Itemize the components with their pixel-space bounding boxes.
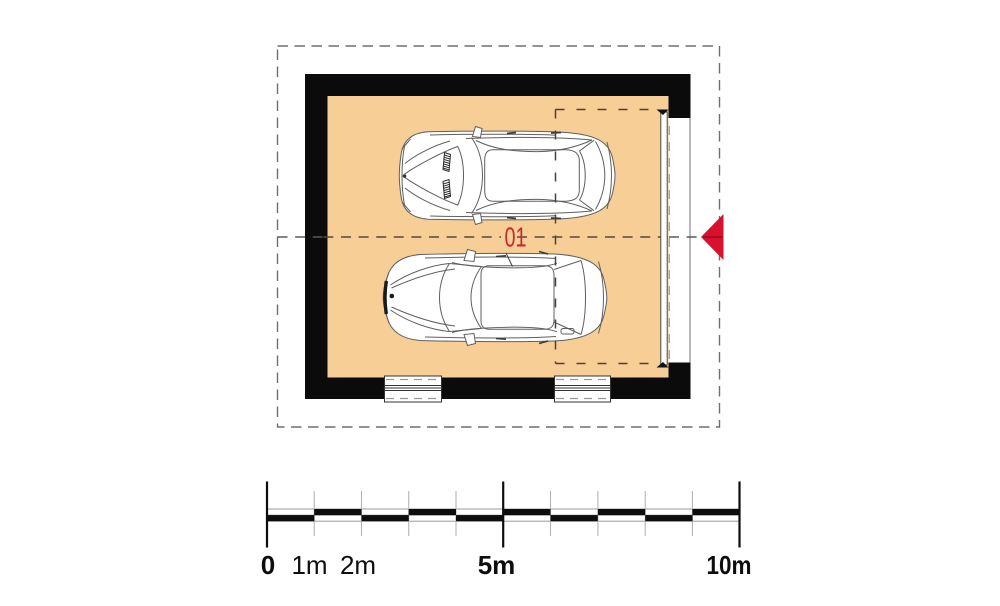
svg-text:10m: 10m <box>707 550 752 580</box>
svg-text:2m: 2m <box>340 550 376 580</box>
svg-text:0: 0 <box>261 550 275 580</box>
svg-text:5m: 5m <box>478 550 516 580</box>
svg-text:1m: 1m <box>291 550 327 580</box>
svg-text:01: 01 <box>505 222 527 253</box>
